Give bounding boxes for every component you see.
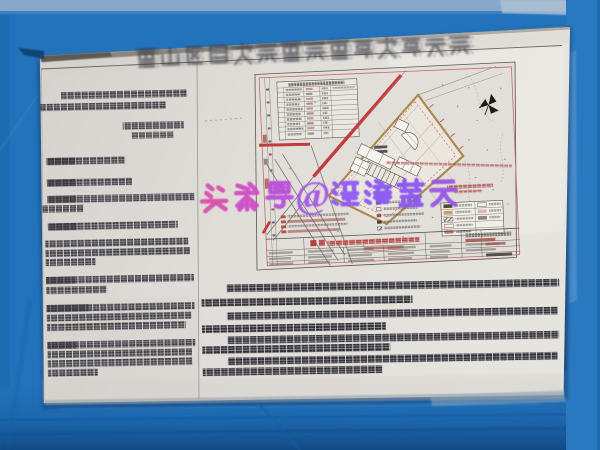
svg-text:@: @ — [295, 174, 331, 217]
